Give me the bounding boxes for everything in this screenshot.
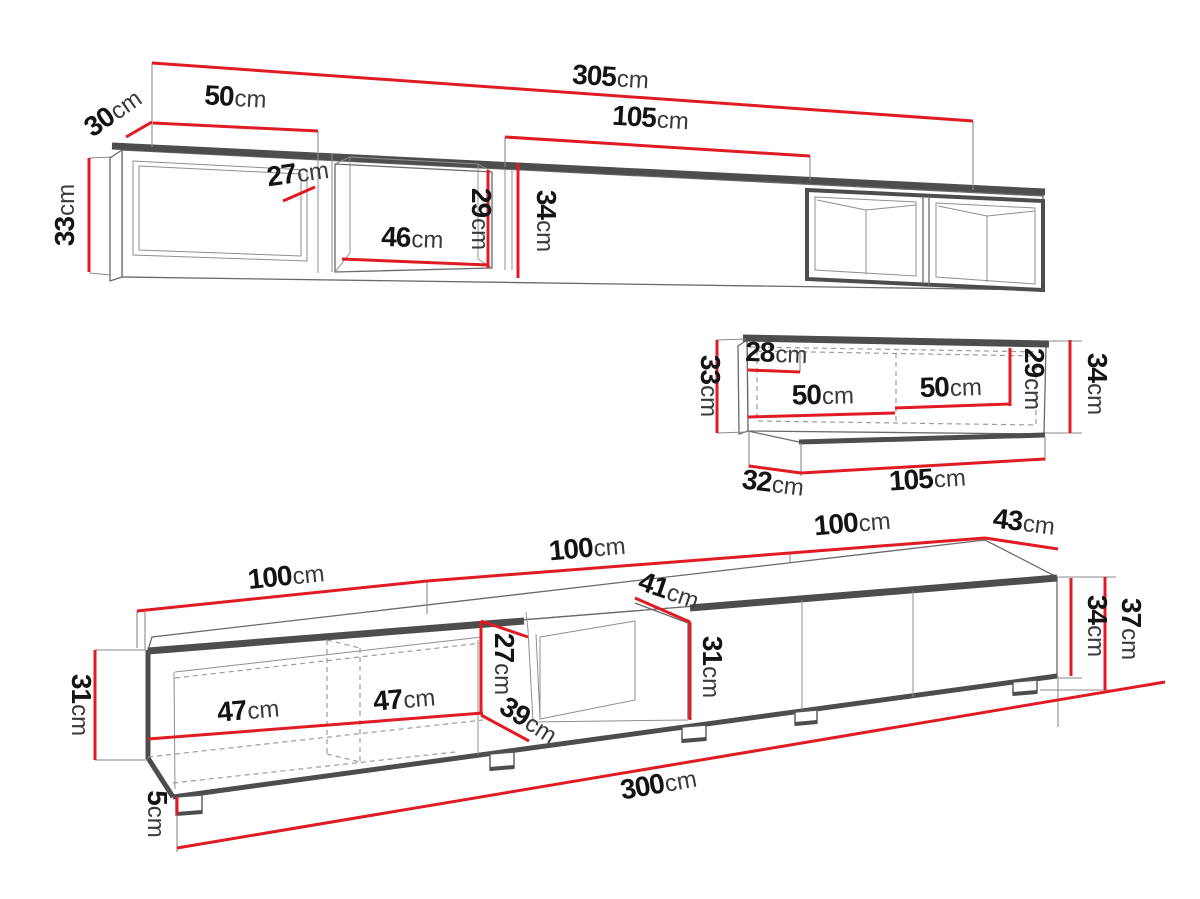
dim-label-34: 34cm [1082, 353, 1113, 415]
wall-shelf-small-view: 33cm 28cm 50cm 50cm 29cm 34cm 32cm 105cm [695, 336, 1113, 502]
dim-label-28: 28cm [745, 336, 808, 369]
dim-label-30: 30cm [78, 82, 147, 143]
dim-label-100c: 100cm [813, 504, 892, 542]
dim-label-5: 5cm [142, 790, 173, 838]
dim-label-29: 29cm [1019, 348, 1050, 410]
dim-line-50 [153, 123, 318, 131]
dim-label-33: 33cm [49, 184, 80, 246]
dim-label-31: 31cm [66, 674, 97, 736]
wall-shelf-long-view: 305cm 50cm 30cm 33cm 27cm 46cm 29cm 34cm… [49, 59, 1045, 290]
tv-stand-view: 100cm 100cm 100cm 43cm 41cm 27cm 31cm 39… [66, 502, 1165, 852]
dim-line-105 [505, 137, 810, 156]
shelf2-bottom-panel-edge [799, 435, 1045, 442]
dim-label-50b: 50cm [919, 370, 982, 403]
shelf2-underside-edge [748, 431, 799, 442]
dim-label-300: 300cm [618, 762, 699, 806]
dim-label-46: 46cm [381, 221, 444, 254]
dim-label-100b: 100cm [548, 529, 627, 567]
dim-label-105: 105cm [888, 460, 967, 496]
dim-label-43: 43cm [991, 502, 1056, 540]
dim-label-31mid: 31cm [697, 636, 728, 698]
dim-label-34: 34cm [531, 190, 562, 252]
dim-line-28 [748, 370, 800, 372]
dim-label-100a: 100cm [246, 556, 326, 595]
shelf-left-side [110, 150, 122, 281]
furniture-dimension-diagram: 305cm 50cm 30cm 33cm 27cm 46cm 29cm 34cm… [0, 0, 1200, 899]
dim-label-37: 37cm [1116, 598, 1147, 660]
dim-label-27: 27cm [489, 633, 520, 695]
dim-label-29: 29cm [466, 188, 497, 250]
dim-label-50a: 50cm [791, 378, 854, 410]
dim-label-33: 33cm [695, 355, 726, 417]
dim-label-34: 34cm [1082, 595, 1113, 657]
dim-line-30 [126, 122, 152, 137]
dim-label-50: 50cm [204, 79, 268, 113]
dim-label-105: 105cm [611, 100, 689, 136]
dim-line-305 [152, 63, 973, 121]
dim-label-305: 305cm [571, 59, 649, 95]
